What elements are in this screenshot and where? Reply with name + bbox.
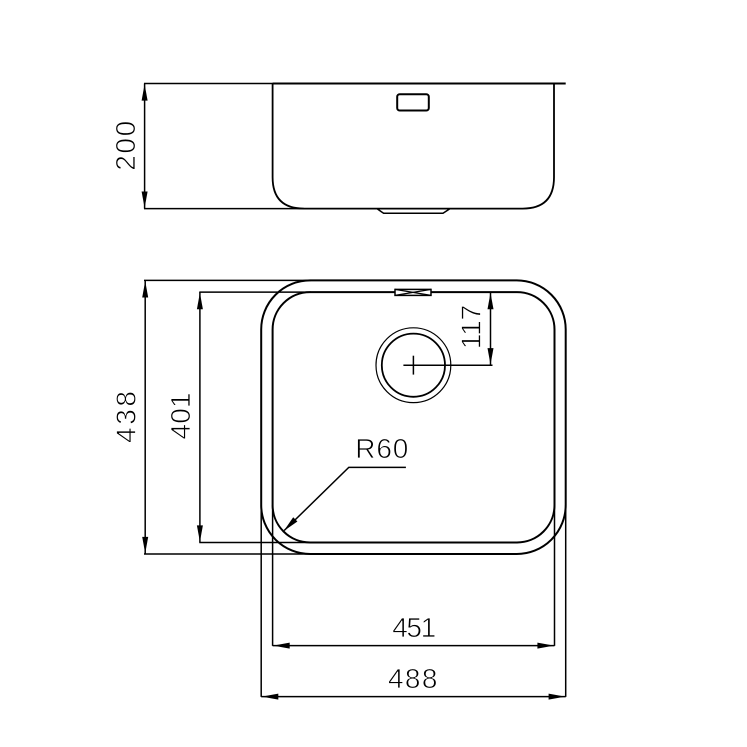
svg-text:R60: R60 (355, 433, 408, 464)
svg-text:451: 451 (392, 612, 436, 643)
svg-text:117: 117 (455, 305, 486, 350)
svg-text:488: 488 (388, 663, 438, 694)
svg-text:438: 438 (111, 391, 142, 443)
svg-text:200: 200 (110, 121, 141, 171)
svg-text:401: 401 (165, 393, 196, 440)
